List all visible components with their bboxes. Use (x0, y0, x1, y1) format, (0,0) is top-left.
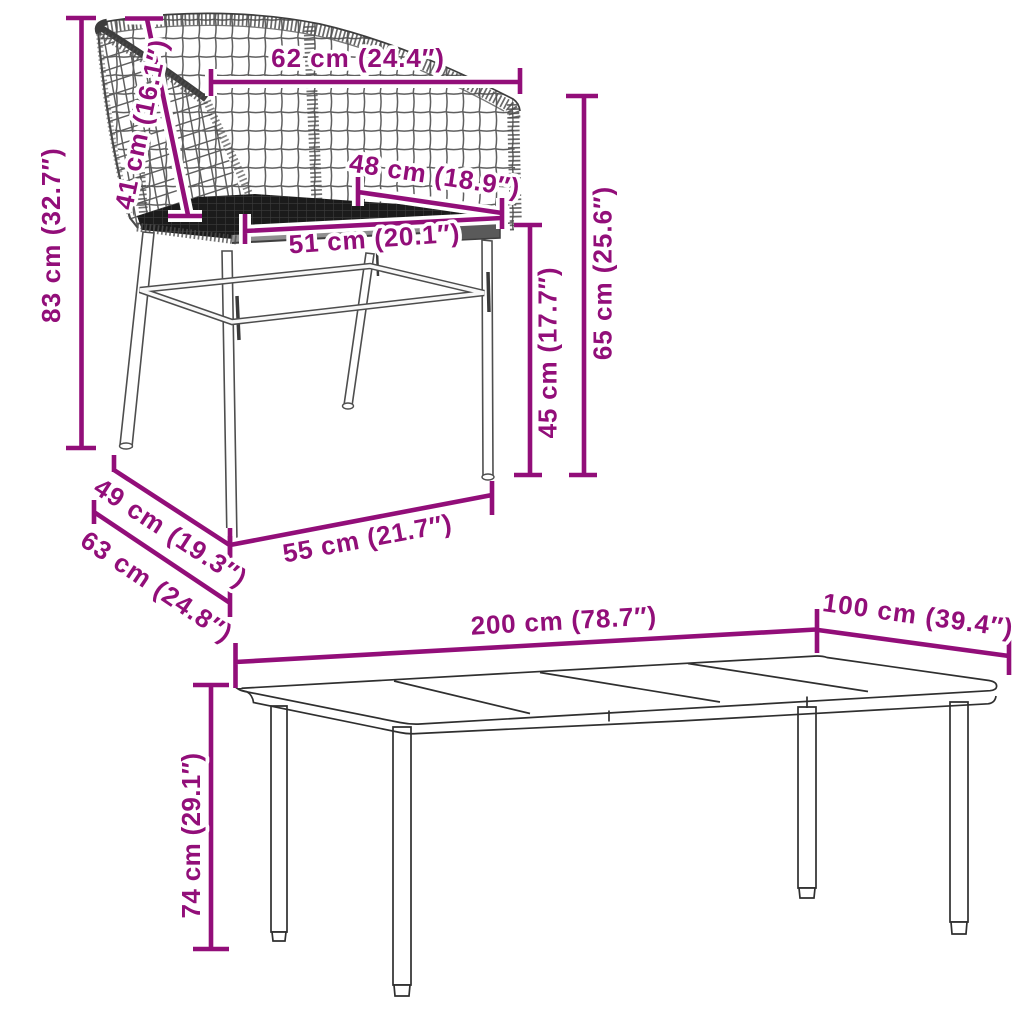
svg-text:65 cm (25.6″): 65 cm (25.6″) (588, 186, 618, 360)
svg-text:45 cm (17.7″): 45 cm (17.7″) (533, 267, 563, 439)
svg-text:74 cm (29.1″): 74 cm (29.1″) (176, 753, 206, 919)
svg-text:62 cm (24.4″): 62 cm (24.4″) (271, 43, 445, 73)
svg-text:83 cm (32.7″): 83 cm (32.7″) (36, 147, 66, 323)
